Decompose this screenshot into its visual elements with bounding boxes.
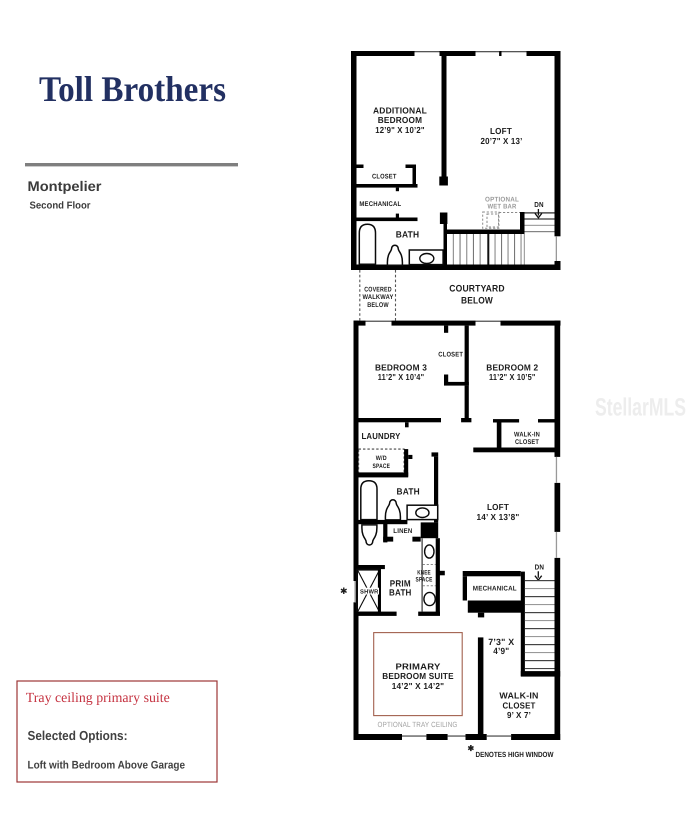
svg-text:BELOW: BELOW bbox=[367, 302, 389, 309]
svg-text:KNEE: KNEE bbox=[417, 569, 431, 576]
svg-text:WET BAR: WET BAR bbox=[488, 203, 517, 210]
svg-text:LINEN: LINEN bbox=[393, 528, 412, 535]
svg-text:BELOW: BELOW bbox=[461, 295, 493, 306]
svg-text:CLOSET: CLOSET bbox=[515, 439, 540, 446]
svg-text:Loft with Bedroom Above Garage: Loft with Bedroom Above Garage bbox=[28, 760, 186, 772]
svg-text:BATH: BATH bbox=[389, 588, 412, 598]
svg-text:PRIMARY: PRIMARY bbox=[396, 661, 441, 671]
svg-text:OPTIONAL TRAY CEILING: OPTIONAL TRAY CEILING bbox=[378, 720, 458, 729]
svg-text:CLOSET: CLOSET bbox=[503, 700, 536, 710]
svg-text:Selected Options:: Selected Options: bbox=[28, 728, 128, 743]
svg-text:Second Floor: Second Floor bbox=[30, 201, 91, 212]
svg-text:SPACE: SPACE bbox=[416, 577, 433, 584]
svg-text:COURTYARD: COURTYARD bbox=[449, 283, 505, 294]
svg-text:BATH: BATH bbox=[397, 487, 420, 497]
svg-text:DN: DN bbox=[534, 200, 544, 209]
svg-text:Montpelier: Montpelier bbox=[28, 178, 103, 194]
svg-text:9’ X 7’: 9’ X 7’ bbox=[507, 710, 531, 720]
svg-text:4’9": 4’9" bbox=[493, 646, 509, 656]
svg-text:14’2" X 14’2": 14’2" X 14’2" bbox=[392, 681, 445, 691]
svg-text:BEDROOM 3: BEDROOM 3 bbox=[375, 362, 427, 372]
svg-text:StellarMLS: StellarMLS bbox=[595, 394, 686, 422]
svg-text:SHWR: SHWR bbox=[360, 588, 379, 595]
svg-text:MECHANICAL: MECHANICAL bbox=[359, 201, 401, 208]
svg-text:✱: ✱ bbox=[340, 586, 348, 596]
svg-text:ADDITIONAL: ADDITIONAL bbox=[373, 106, 427, 116]
svg-text:COVERED: COVERED bbox=[364, 286, 392, 293]
svg-text:11’2" X 10’4": 11’2" X 10’4" bbox=[378, 372, 425, 382]
svg-text:SPACE: SPACE bbox=[373, 463, 391, 470]
svg-text:MECHANICAL: MECHANICAL bbox=[473, 585, 517, 592]
svg-text:WALK-IN: WALK-IN bbox=[499, 690, 538, 700]
svg-text:BATH: BATH bbox=[396, 230, 420, 240]
svg-text:LOFT: LOFT bbox=[487, 502, 509, 512]
svg-text:14’ X 13’8": 14’ X 13’8" bbox=[477, 512, 520, 522]
svg-text:W/D: W/D bbox=[376, 455, 387, 462]
svg-text:DENOTES HIGH WINDOW: DENOTES HIGH WINDOW bbox=[476, 750, 555, 759]
svg-text:LOFT: LOFT bbox=[490, 126, 512, 136]
svg-text:WALKWAY: WALKWAY bbox=[363, 294, 394, 301]
svg-text:20’7" X 13’: 20’7" X 13’ bbox=[481, 136, 523, 146]
svg-text:12’9" X 10’2": 12’9" X 10’2" bbox=[375, 125, 425, 135]
svg-text:BEDROOM SUITE: BEDROOM SUITE bbox=[382, 671, 454, 681]
svg-text:BEDROOM 2: BEDROOM 2 bbox=[486, 362, 538, 372]
svg-text:BEDROOM: BEDROOM bbox=[378, 115, 423, 125]
svg-text:Tray ceiling primary suite: Tray ceiling primary suite bbox=[26, 691, 170, 706]
svg-text:✱: ✱ bbox=[467, 744, 474, 753]
svg-text:CLOSET: CLOSET bbox=[372, 173, 397, 180]
svg-text:CLOSET: CLOSET bbox=[438, 352, 463, 359]
svg-text:LAUNDRY: LAUNDRY bbox=[362, 431, 401, 441]
svg-text:OPTIONAL: OPTIONAL bbox=[485, 196, 519, 203]
svg-text:WALK-IN: WALK-IN bbox=[514, 431, 540, 438]
svg-text:11’2" X 10’5": 11’2" X 10’5" bbox=[489, 372, 536, 382]
svg-text:DN: DN bbox=[535, 562, 545, 571]
svg-text:Toll Brothers: Toll Brothers bbox=[39, 69, 226, 109]
